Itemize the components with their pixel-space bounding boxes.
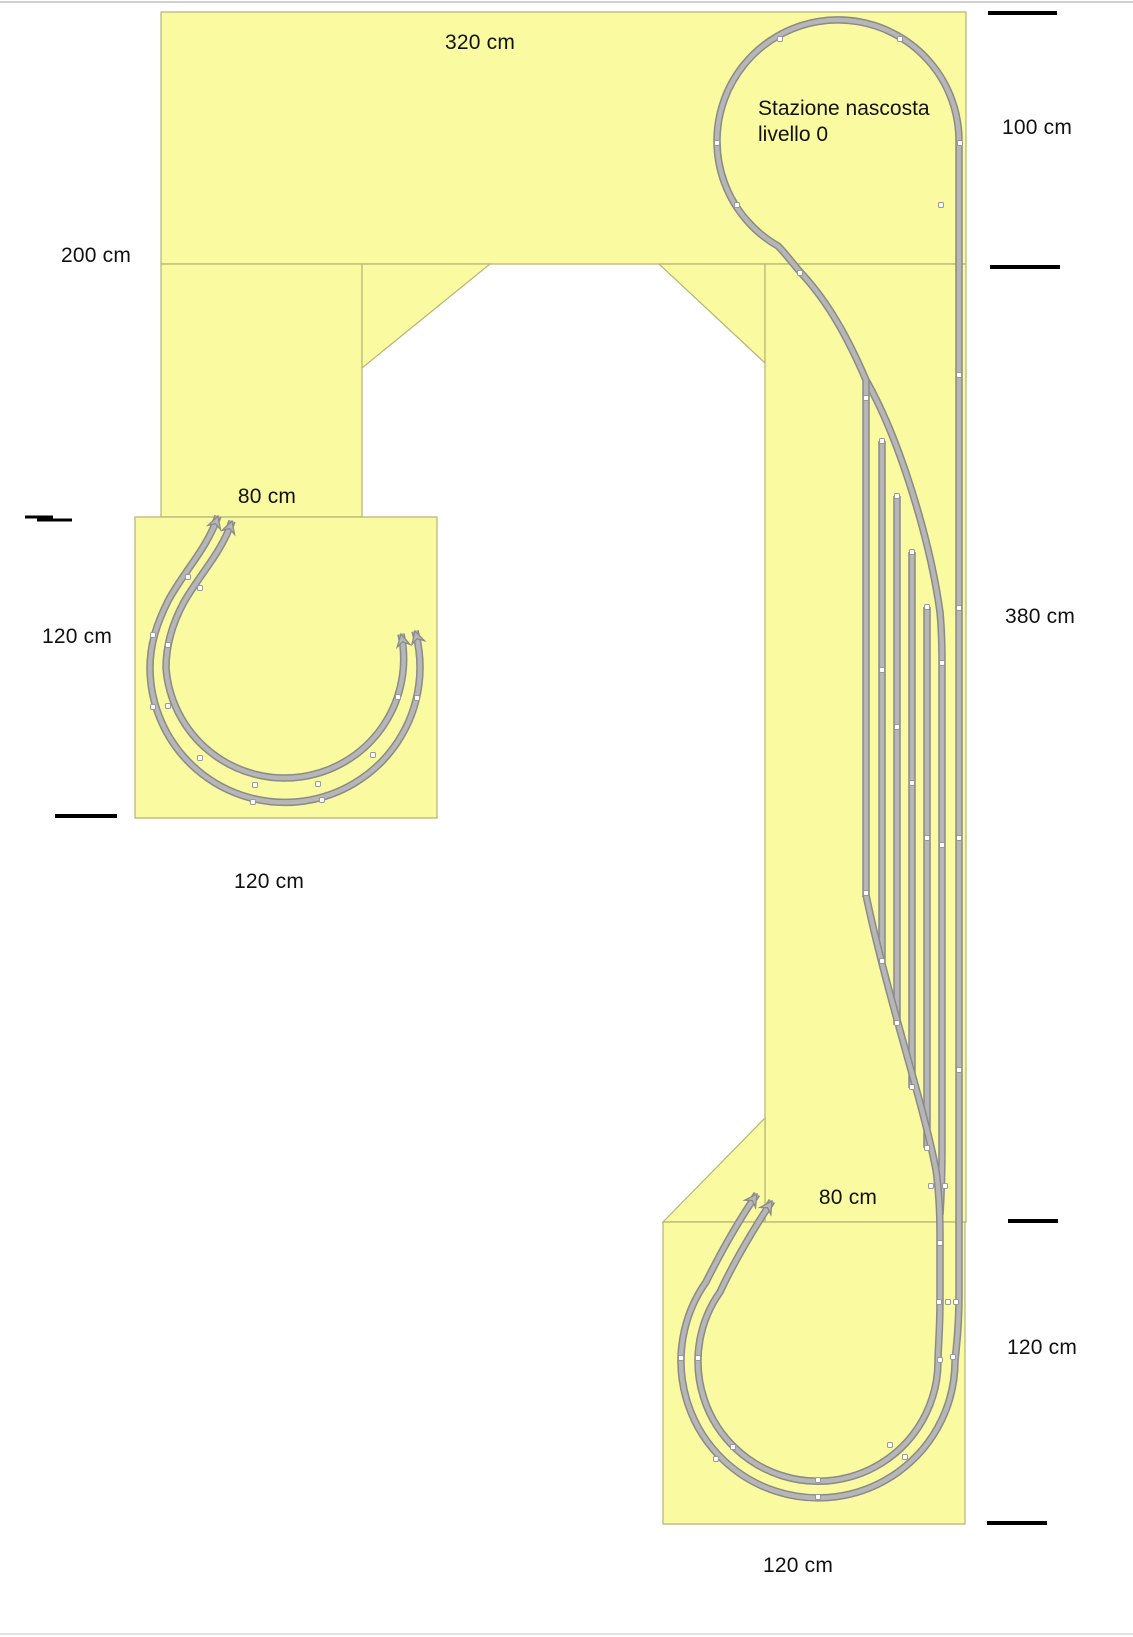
rail-joint-marker [396,695,401,700]
rail-joint-marker [880,959,885,964]
dimension-label-right-height-380: 380 cm [1005,605,1075,629]
rail-joint-marker [895,494,900,499]
rail-joint-marker [696,1356,701,1361]
rail-joint-marker [715,141,720,146]
rail-joint-marker [938,1241,943,1246]
rail-joint-marker [954,1300,959,1305]
panel-left-square [135,517,437,818]
dimension-label-left-square-width-120: 120 cm [234,870,304,894]
rail-joint-marker [925,605,930,610]
rail-joint-marker [925,1146,930,1151]
rail-joint-marker [910,1085,915,1090]
rail-joint-marker [946,1300,951,1305]
rail-joint-marker [895,1021,900,1026]
rail-joint-marker [880,439,885,444]
dimension-label-left-height-200: 200 cm [61,244,131,268]
rail-joint-marker [714,1457,719,1462]
rail-joint-marker [895,725,900,730]
rail-joint-marker [778,37,783,42]
rail-joint-marker [943,1184,948,1189]
rail-joint-marker [798,271,803,276]
rail-joint-marker [910,781,915,786]
rail-joint-marker [864,891,869,896]
rail-joint-marker [898,37,903,42]
rail-joint-marker [940,661,945,666]
rail-joint-marker [316,782,321,787]
rail-joint-marker [951,1355,956,1360]
rail-joint-marker [910,550,915,555]
rail-joint-marker [415,696,420,701]
rail-joint-marker [151,705,156,710]
rail-joint-marker [371,753,376,758]
rail-joint-marker [957,606,962,611]
rail-joint-marker [320,798,325,803]
rail-joint-marker [957,373,962,378]
panel-left-wing [362,264,490,368]
rail-joint-marker [253,783,258,788]
rail-joint-marker [251,800,256,805]
rail-joint-marker [198,756,203,761]
dimension-label-left-column-width-80: 80 cm [238,485,296,509]
rail-joint-marker [166,704,171,709]
track-yard-track-6 [940,663,942,1215]
rail-joint-marker [735,203,740,208]
dimension-label-right-height-100: 100 cm [1002,116,1072,140]
rail-joint-marker [888,1443,893,1448]
rail-joint-marker [186,575,191,580]
rail-joint-marker [925,836,930,841]
rail-joint-marker [929,1184,934,1189]
panel-left-column [161,264,362,517]
track-plan-canvas: 320 cm100 cm200 cm80 cm120 cm380 cm120 c… [0,0,1133,1637]
panel-right-wing [659,264,765,363]
dimension-label-left-square-height-120: 120 cm [42,625,112,649]
station-note-line2: livello 0 [758,122,930,148]
rail-joint-marker [166,643,171,648]
dimension-label-bottom-square-width-120: 120 cm [763,1554,833,1578]
rail-joint-marker [151,633,156,638]
rail-joint-marker [679,1356,684,1361]
station-note: Stazione nascosta livello 0 [758,96,930,148]
dimension-label-right-column-width-80: 80 cm [819,1186,877,1210]
rail-joint-marker [939,203,944,208]
rail-joint-marker [880,668,885,673]
rail-joint-marker [938,1358,943,1363]
rail-joint-marker [957,1068,962,1073]
dimension-label-top-width-320: 320 cm [445,31,515,55]
rail-joint-marker [731,1445,736,1450]
track-plan-drawing [0,0,1133,1637]
rail-joint-marker [940,843,945,848]
rail-joint-marker [816,1495,821,1500]
rail-joint-marker [957,836,962,841]
rail-joint-marker [816,1478,821,1483]
rail-joint-marker [937,1300,942,1305]
rail-joint-marker [864,396,869,401]
rail-joint-marker [958,141,963,146]
rail-joint-marker [903,1455,908,1460]
dimension-label-right-height-120: 120 cm [1007,1336,1077,1360]
rail-joint-marker [198,586,203,591]
station-note-line1: Stazione nascosta [758,96,930,122]
